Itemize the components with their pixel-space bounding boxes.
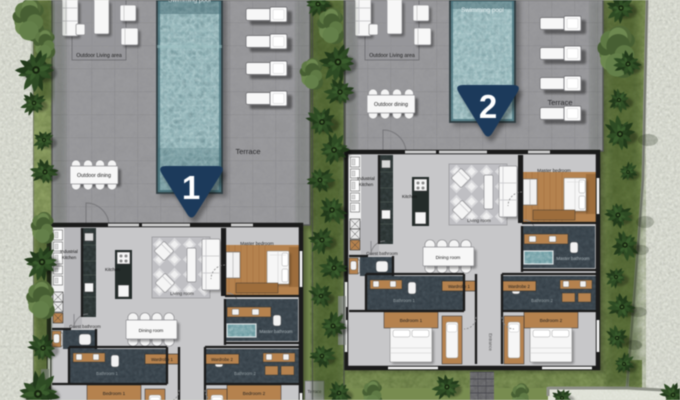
svg-text:Swimming pool: Swimming pool [168, 0, 211, 4]
svg-text:Outdoor Living area: Outdoor Living area [369, 53, 415, 59]
svg-text:1: 1 [182, 169, 200, 206]
svg-text:2: 2 [479, 88, 497, 125]
svg-text:Outdoor Living area: Outdoor Living area [76, 53, 122, 59]
svg-text:Swimming pool: Swimming pool [461, 7, 504, 14]
svg-text:Outdoor dining: Outdoor dining [374, 102, 408, 108]
svg-text:Terrace: Terrace [235, 147, 260, 156]
svg-text:Terrace: Terrace [547, 98, 572, 107]
svg-text:Outdoor dining: Outdoor dining [77, 173, 111, 179]
